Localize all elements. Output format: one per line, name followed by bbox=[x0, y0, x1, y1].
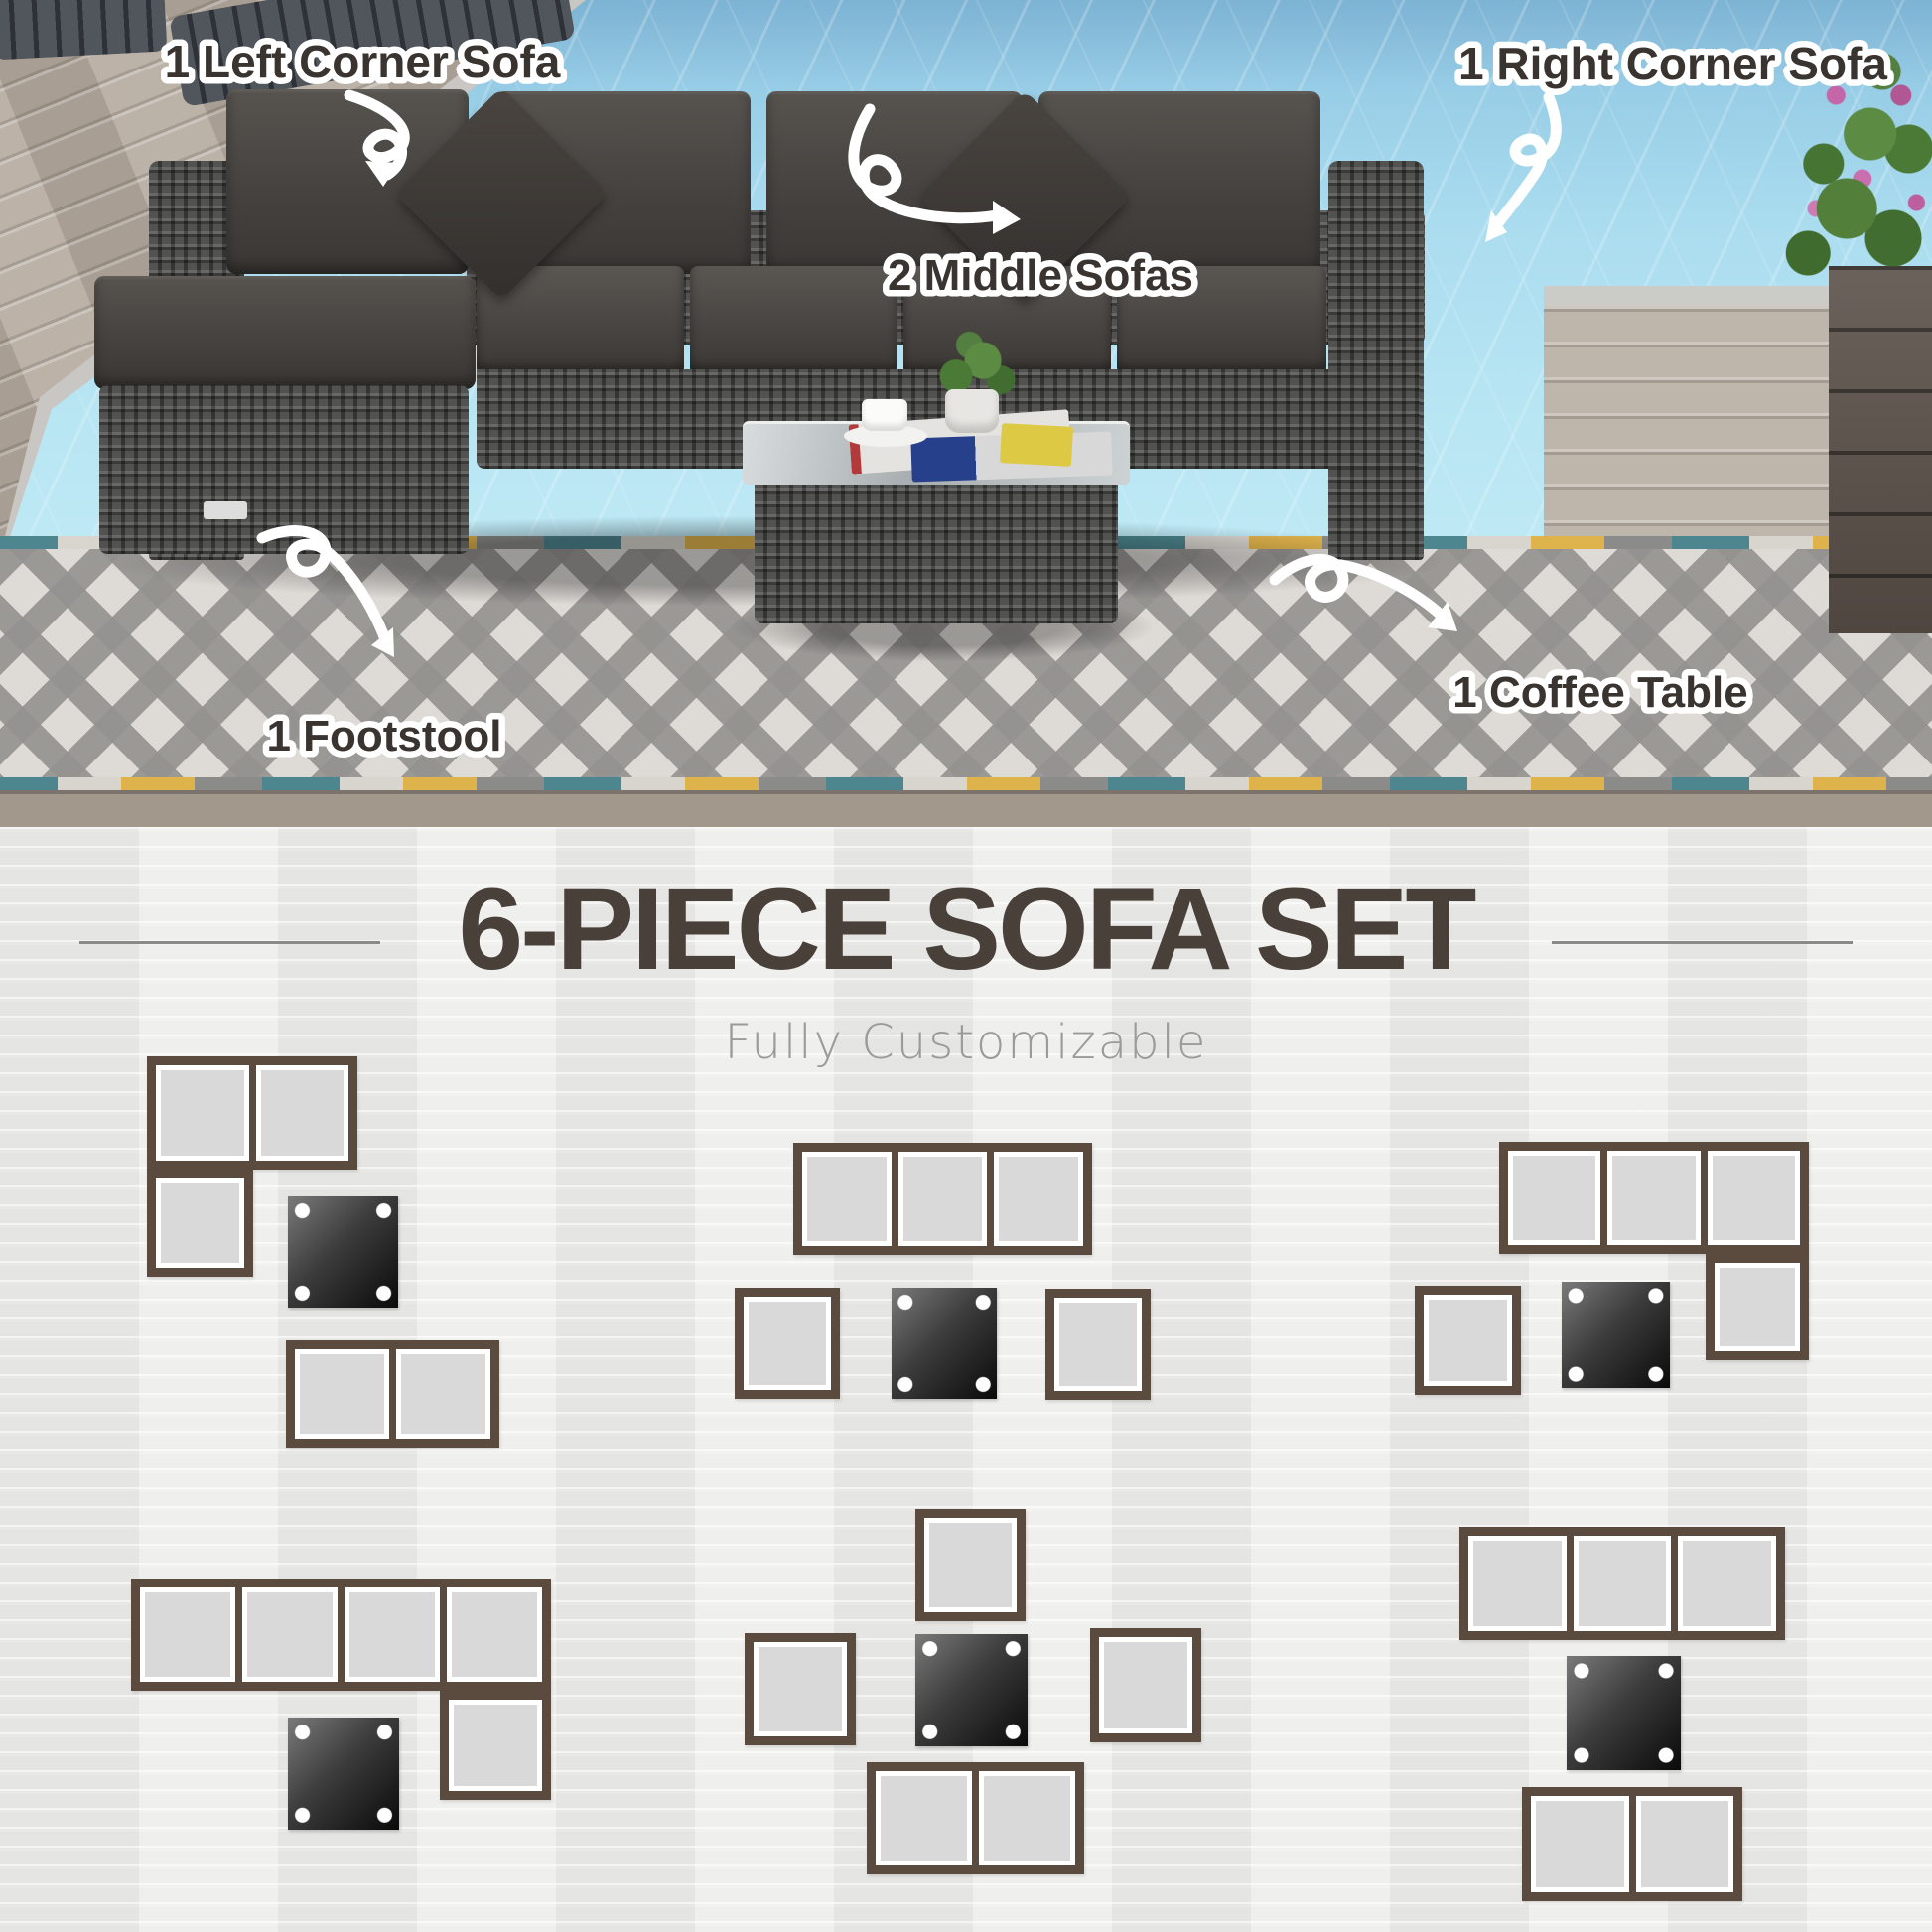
diagram-coffee-table bbox=[1567, 1656, 1681, 1770]
diagram-seat bbox=[924, 1518, 1017, 1612]
diagram-seat bbox=[156, 1065, 249, 1161]
diagram-sofa-piece bbox=[1415, 1286, 1521, 1395]
diagram-seat bbox=[1715, 1263, 1800, 1351]
diagram-seat bbox=[876, 1771, 972, 1865]
diagram-sofa-piece bbox=[735, 1288, 840, 1399]
diagram-seat bbox=[744, 1297, 831, 1390]
diagram-seat bbox=[1531, 1796, 1629, 1892]
diagram-sofa-piece bbox=[1499, 1142, 1809, 1254]
diagram-seat bbox=[396, 1349, 490, 1439]
diagram-seat bbox=[754, 1642, 847, 1736]
label-right-corner-sofa: 1 Right Corner Sofa bbox=[1458, 38, 1887, 89]
label-footstool: 1 Footstool bbox=[266, 712, 501, 760]
diagram-sofa-piece bbox=[286, 1340, 499, 1448]
label-middle-sofas: 2 Middle Sofas bbox=[888, 251, 1193, 300]
diagram-sofa-piece bbox=[745, 1633, 856, 1745]
page-title: 6-PIECE SOFA SET bbox=[0, 862, 1932, 997]
diagram-seat bbox=[1054, 1298, 1142, 1391]
product-infographic: 1 Left Corner Sofa 1 Right Corner Sofa 2… bbox=[0, 0, 1932, 1932]
diagram-coffee-table bbox=[288, 1196, 398, 1308]
arrow-right-corner bbox=[1497, 97, 1556, 224]
label-coffee-table: 1 Coffee Table bbox=[1452, 668, 1747, 717]
diagram-seat bbox=[449, 1700, 542, 1791]
diagram-coffee-table bbox=[915, 1634, 1028, 1746]
diagram-coffee-table bbox=[892, 1288, 997, 1399]
arrow-footstool bbox=[262, 531, 385, 639]
label-left-corner-sofa: 1 Left Corner Sofa bbox=[165, 36, 561, 87]
diagram-sofa-piece bbox=[131, 1579, 551, 1691]
diagram-sofa-piece bbox=[147, 1170, 253, 1277]
diagram-seat bbox=[345, 1587, 440, 1682]
arrow-coffee-table bbox=[1275, 559, 1442, 616]
diagram-seat bbox=[242, 1587, 338, 1682]
diagram-seat bbox=[1574, 1536, 1672, 1631]
diagram-seat bbox=[1424, 1295, 1512, 1386]
diagram-seat bbox=[1508, 1151, 1600, 1245]
diagram-sofa-piece bbox=[915, 1509, 1026, 1621]
diagram-seat bbox=[140, 1587, 235, 1682]
diagram-seat bbox=[156, 1178, 244, 1268]
diagram-sofa-piece bbox=[1045, 1289, 1151, 1400]
diagram-seat bbox=[447, 1587, 542, 1682]
diagram-seat bbox=[295, 1349, 389, 1439]
photo-annotations: 1 Left Corner Sofa 1 Right Corner Sofa 2… bbox=[0, 0, 1932, 827]
diagram-seat bbox=[1708, 1151, 1800, 1245]
diagram-seat bbox=[802, 1152, 892, 1246]
diagram-coffee-table bbox=[288, 1718, 399, 1830]
diagram-sofa-piece bbox=[1459, 1527, 1785, 1640]
diagram-sofa-piece bbox=[1706, 1254, 1809, 1360]
arrow-middle bbox=[854, 109, 997, 218]
arrowhead-middle bbox=[993, 201, 1021, 234]
diagram-seat bbox=[1099, 1637, 1192, 1733]
diagram-seat bbox=[994, 1152, 1083, 1246]
diagram-sofa-piece bbox=[147, 1056, 357, 1170]
diagram-sofa-piece bbox=[440, 1691, 551, 1800]
diagram-seat bbox=[1468, 1536, 1567, 1631]
diagram-seat bbox=[1678, 1536, 1776, 1631]
diagram-coffee-table bbox=[1562, 1282, 1670, 1388]
diagram-seat bbox=[1636, 1796, 1734, 1892]
diagram-seat bbox=[898, 1152, 988, 1246]
diagram-sofa-piece bbox=[867, 1762, 1084, 1874]
diagram-seat bbox=[979, 1771, 1075, 1865]
pool-photo: 1 Left Corner Sofa 1 Right Corner Sofa 2… bbox=[0, 0, 1932, 827]
diagram-seat bbox=[256, 1065, 349, 1161]
diagram-sofa-piece bbox=[1522, 1787, 1742, 1901]
diagram-seat bbox=[1607, 1151, 1700, 1245]
diagram-sofa-piece bbox=[793, 1143, 1092, 1255]
diagram-sofa-piece bbox=[1090, 1628, 1201, 1742]
